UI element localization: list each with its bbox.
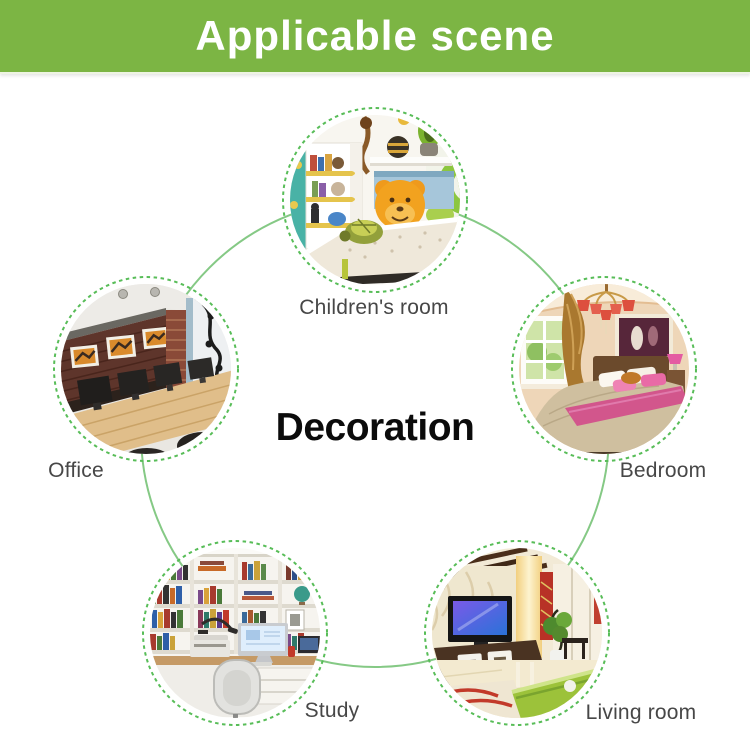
bookshelf	[146, 554, 324, 656]
office-photo	[51, 274, 241, 464]
printer	[190, 635, 230, 657]
red-cup	[288, 646, 295, 657]
living-room-photo	[422, 538, 612, 728]
office-label: Office	[48, 459, 104, 483]
bedroom-label: Bedroom	[620, 459, 707, 483]
teal-wall	[280, 133, 306, 258]
center-title: Decoration	[276, 406, 475, 450]
study-photo	[140, 538, 330, 728]
wall-picture	[615, 314, 673, 360]
tv	[448, 596, 512, 645]
scene-bedroom	[509, 274, 699, 464]
study-label: Study	[305, 699, 360, 723]
globe	[294, 586, 310, 602]
scene-office	[51, 274, 241, 464]
children-room-label: Children's room	[299, 296, 448, 320]
bedroom-photo	[509, 274, 699, 464]
rug	[428, 680, 528, 728]
bee-plush	[387, 136, 409, 158]
scene-study	[140, 538, 330, 728]
scene-living-room	[422, 538, 612, 728]
page-canvas: Applicable scene Decoration	[0, 0, 750, 750]
children-room-photo	[280, 105, 470, 295]
living-room-label: Living room	[586, 701, 697, 725]
scene-children-room	[280, 105, 470, 295]
